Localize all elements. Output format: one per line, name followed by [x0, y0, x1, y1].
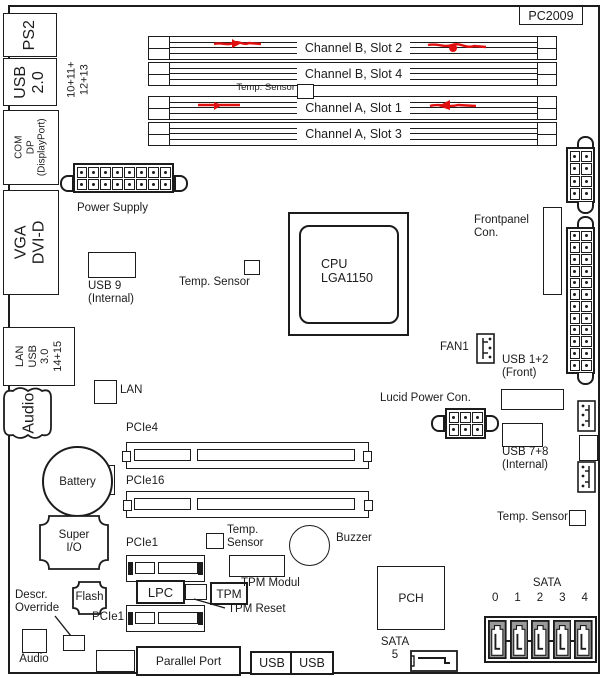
pin — [570, 176, 581, 188]
slot-key — [537, 97, 556, 119]
temp-sensor-label-br: Temp. Sensor — [488, 511, 568, 524]
slot-fingers — [410, 125, 537, 143]
slot-segment — [158, 562, 198, 574]
slot-key — [537, 123, 556, 145]
pin — [581, 163, 592, 175]
pin — [460, 424, 471, 436]
sata-port-number: 2 — [537, 592, 543, 604]
slot-key — [149, 37, 170, 59]
pin — [581, 242, 592, 253]
pin — [472, 424, 483, 436]
pcie1-slot-bottom — [126, 605, 205, 632]
port-com-dp: COM DP (DisplayPort) — [3, 110, 59, 185]
port-audio-label: Audio — [20, 393, 38, 434]
slot-tab — [364, 500, 373, 511]
pin — [581, 176, 592, 188]
pin — [581, 254, 592, 265]
temp-sensor-label-memory: Temp. Sensor — [227, 83, 295, 94]
pin — [148, 179, 159, 190]
pin — [581, 289, 592, 300]
pin — [570, 231, 581, 242]
red-marker — [196, 100, 242, 112]
memory-slot-b4: Channel B, Slot 4 — [148, 62, 557, 86]
sata-port-number: 4 — [582, 592, 588, 604]
pin — [581, 325, 592, 336]
pin — [581, 278, 592, 289]
slot-cap — [198, 562, 203, 575]
pch-chip: PCH — [377, 566, 445, 630]
pin — [449, 424, 460, 436]
pin — [570, 163, 581, 175]
buzzer-label: Buzzer — [336, 532, 372, 545]
power-supply-connector — [73, 163, 174, 193]
lpc-label: LPC — [148, 585, 173, 600]
sata-port-number: 3 — [559, 592, 565, 604]
fan-header-top — [577, 400, 596, 432]
pin — [112, 167, 123, 178]
slot-segment — [197, 498, 355, 510]
pin — [160, 167, 171, 178]
temp-sensor-br — [569, 510, 586, 526]
port-vga-dvi: VGA DVI-D — [3, 190, 59, 295]
pcie4-label: PCIe4 — [126, 422, 158, 435]
frontpanel-connector — [543, 207, 562, 295]
slot-segment — [135, 562, 155, 574]
pin — [136, 179, 147, 190]
power-supply-wing — [60, 175, 74, 192]
pcie1-slot-top — [126, 555, 205, 582]
audio-chip-label: Audio — [11, 653, 57, 666]
port-usb20-label: USB 2.0 — [12, 66, 49, 99]
pin — [77, 167, 88, 178]
small-header — [579, 435, 598, 461]
temp-sensor-label-mid: Temp. Sensor — [179, 276, 265, 289]
descr-override-jumper — [63, 635, 85, 651]
slot-cap — [198, 612, 203, 625]
parallel-port-header: Parallel Port — [136, 646, 241, 676]
sata-port-number: 1 — [514, 592, 520, 604]
lan-chip — [94, 380, 117, 404]
pin — [570, 325, 581, 336]
red-marker — [212, 37, 264, 51]
slot-fingers — [170, 65, 297, 83]
fan-header-bottom — [577, 461, 596, 493]
slot-fingers — [170, 125, 297, 143]
pin — [100, 179, 111, 190]
sata-title: SATA — [524, 577, 570, 590]
pin — [460, 412, 471, 424]
sata-port-numbers: 01234 — [484, 592, 596, 604]
pin — [136, 167, 147, 178]
header-2x12 — [566, 227, 595, 374]
usb-label: USB — [299, 656, 325, 670]
usb20-note-label: 10+11+ 12+13 — [65, 62, 90, 99]
usb78-header — [502, 423, 543, 447]
pin — [581, 231, 592, 242]
pin — [88, 167, 99, 178]
power-supply-label: Power Supply — [77, 202, 169, 215]
lucid-power-connector — [445, 408, 486, 439]
pin — [581, 360, 592, 371]
usb12-label: USB 1+2 (Front) — [502, 354, 548, 380]
cpu-label: CPU LGA1150 — [321, 257, 373, 286]
buzzer — [289, 525, 330, 566]
slot-fingers — [410, 65, 537, 83]
lan-label: LAN — [120, 384, 142, 397]
usb9-header — [88, 252, 136, 278]
pcie4-slot — [126, 442, 369, 469]
lucid-power-label: Lucid Power Con. — [380, 392, 490, 405]
pin — [124, 179, 135, 190]
slot-segment — [158, 612, 198, 624]
flash-label: Flash — [71, 588, 108, 608]
pch-label: PCH — [398, 591, 423, 605]
pin — [570, 254, 581, 265]
port-vga-dvi-label: VGA DVI-D — [13, 221, 50, 265]
tpm-reset-label: TPM Reset — [228, 603, 286, 616]
slot-segment — [197, 449, 355, 461]
fan1-label: FAN1 — [440, 341, 469, 354]
memory-slot-a3: Channel A, Slot 3 — [148, 122, 557, 146]
header-2x4 — [566, 147, 595, 203]
pin — [581, 348, 592, 359]
memory-slot-label: Channel B, Slot 2 — [297, 37, 410, 59]
descr-override-label: Descr. Override — [15, 589, 59, 615]
slot-key — [149, 63, 170, 85]
pin — [570, 313, 581, 324]
pin — [472, 412, 483, 424]
pin — [570, 289, 581, 300]
slot-key — [537, 37, 556, 59]
temp-sensor-pcie — [206, 533, 224, 549]
cpu-socket: CPU LGA1150 — [288, 212, 409, 336]
lpc-header: LPC — [136, 580, 185, 604]
battery: Battery — [42, 446, 113, 517]
usb-bottom-header-1: USB — [250, 651, 294, 675]
temp-sensor-memory — [297, 84, 314, 99]
pin — [570, 360, 581, 371]
slot-segment — [134, 498, 191, 510]
board-id: PC2009 — [528, 9, 573, 23]
sata-port-connector — [553, 620, 572, 659]
bottom-edge-header — [96, 650, 135, 672]
temp-sensor-mid — [244, 260, 260, 275]
pin — [570, 301, 581, 312]
pcie1-label-top: PCIe1 — [126, 537, 158, 550]
slot-cap — [128, 612, 133, 625]
pin — [100, 167, 111, 178]
sata-port-number: 0 — [492, 592, 498, 604]
port-audio: Audio — [4, 388, 54, 438]
parallel-port-label: Parallel Port — [156, 654, 221, 668]
pin — [570, 151, 581, 163]
pin — [581, 336, 592, 347]
slot-tab — [123, 500, 132, 511]
tpm-modul-label: TPM Modul — [241, 577, 300, 590]
slot-segment — [134, 449, 191, 461]
audio-chip — [22, 629, 47, 653]
sata5-connector — [409, 650, 459, 672]
slot-key — [149, 123, 170, 145]
memory-slot-b2: Channel B, Slot 2 — [148, 36, 557, 60]
slot-key — [537, 63, 556, 85]
fan1-connector — [476, 333, 495, 364]
port-com-dp-label: COM DP (DisplayPort) — [14, 119, 49, 177]
pcie16-label: PCIe16 — [126, 475, 164, 488]
usb20-note: 10+11+ 12+13 — [48, 51, 108, 109]
pin — [570, 188, 581, 200]
tpm-modul-header — [229, 555, 285, 577]
pin — [124, 167, 135, 178]
slot-segment — [135, 612, 155, 624]
pin — [570, 348, 581, 359]
slot-tab — [363, 451, 372, 462]
temp-sensor-label-pcie: Temp. Sensor — [227, 524, 263, 550]
frontpanel-label: Frontpanel Con. — [474, 214, 529, 240]
super-io-label: Super I/O — [38, 524, 110, 560]
pcie1-label-bottom: PCIe1 — [86, 611, 124, 624]
pin — [570, 278, 581, 289]
sata-port-connector — [531, 620, 550, 659]
sata-connector-block — [484, 616, 597, 663]
usb78-label: USB 7+8 (Internal) — [502, 446, 548, 472]
usb12-header — [501, 389, 564, 410]
sata-port-connector — [574, 620, 593, 659]
memory-slot-label: Channel A, Slot 1 — [297, 97, 410, 119]
port-lan-usb3: LAN USB 3.0 14+15 — [3, 327, 75, 386]
pin — [449, 412, 460, 424]
pin — [570, 242, 581, 253]
slot-key — [149, 97, 170, 119]
motherboard-diagram: PC2009 PS2 USB 2.0 10+11+ 12+13 COM DP (… — [0, 0, 606, 678]
sata-port-connector — [510, 620, 529, 659]
pin — [581, 266, 592, 277]
pin — [112, 179, 123, 190]
red-marker — [426, 39, 488, 53]
pin — [148, 167, 159, 178]
usb-bottom-header-2: USB — [290, 651, 334, 675]
lucid-wing — [431, 415, 445, 432]
memory-slot-label: Channel A, Slot 3 — [297, 123, 410, 145]
pin — [581, 188, 592, 200]
pin — [570, 336, 581, 347]
usb-label: USB — [259, 656, 285, 670]
slot-cap — [128, 562, 133, 575]
port-ps2-label: PS2 — [21, 20, 39, 50]
pin — [581, 301, 592, 312]
port-lan-usb3-label: LAN USB 3.0 14+15 — [14, 341, 65, 372]
slot-tab — [122, 451, 131, 462]
usb9-label: USB 9 (Internal) — [88, 280, 134, 306]
pcie16-slot — [126, 491, 369, 518]
red-marker — [428, 97, 478, 113]
pin — [160, 179, 171, 190]
battery-label: Battery — [59, 476, 95, 488]
sata-port-connector — [488, 620, 507, 659]
pin — [581, 151, 592, 163]
pin — [581, 313, 592, 324]
pin — [77, 179, 88, 190]
memory-slot-label: Channel B, Slot 4 — [297, 63, 410, 85]
board-id-box: PC2009 — [519, 6, 583, 25]
pin — [570, 266, 581, 277]
pin — [88, 179, 99, 190]
